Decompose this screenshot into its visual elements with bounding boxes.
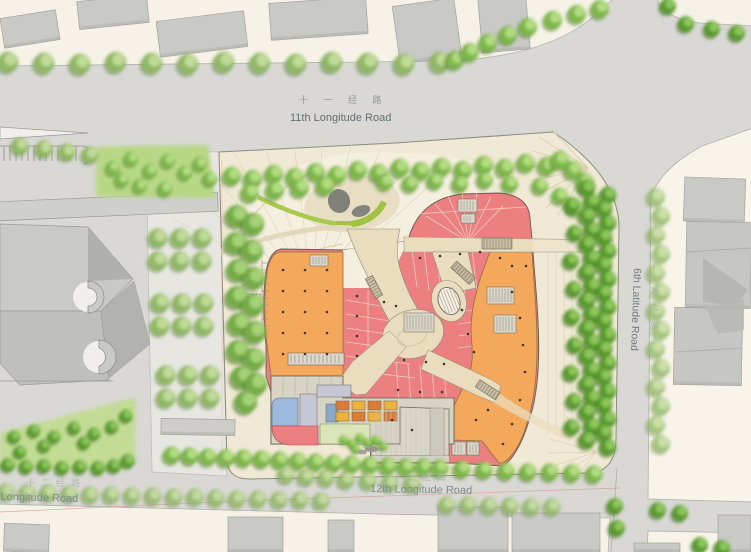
svg-text:12th Longitude Road: 12th Longitude Road — [0, 490, 78, 505]
svg-text:十二经路: 十二经路 — [392, 471, 452, 483]
svg-text:12th Longitude Road: 12th Longitude Road — [370, 483, 472, 497]
svg-text:11th Longitude Road: 11th Longitude Road — [290, 112, 391, 124]
svg-text:十二经路: 十二经路 — [26, 477, 86, 488]
svg-text:大经路: 大经路 — [648, 286, 660, 339]
svg-text:十 一 经 路: 十 一 经 路 — [299, 94, 388, 105]
